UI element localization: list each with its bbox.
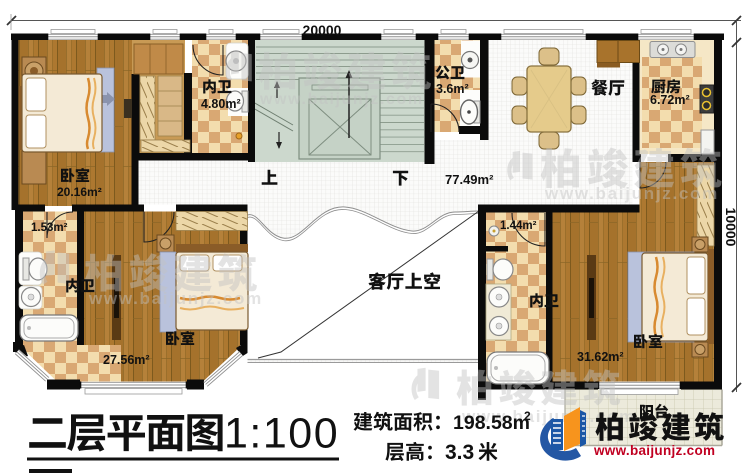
svg-text:1:100: 1:100 (224, 410, 339, 458)
svg-text:www.baijunjz.com: www.baijunjz.com (544, 184, 719, 203)
svg-text:4.80m²: 4.80m² (201, 97, 241, 111)
svg-text:6.72m²: 6.72m² (650, 93, 690, 107)
svg-text:31.62m²: 31.62m² (577, 350, 624, 364)
svg-text:10000: 10000 (723, 208, 739, 247)
svg-text:20.16m²: 20.16m² (57, 185, 102, 199)
svg-text:www.baijunjz.com: www.baijunjz.com (259, 91, 424, 108)
svg-text:20000: 20000 (303, 22, 342, 38)
svg-text:77.49m²: 77.49m² (445, 172, 494, 187)
svg-text:2: 2 (524, 409, 531, 423)
svg-text:www.baijunjz.com: www.baijunjz.com (88, 289, 263, 308)
svg-text:3.6m²: 3.6m² (436, 82, 469, 96)
svg-text:www.baijunjz.com: www.baijunjz.com (593, 443, 715, 458)
svg-text:27.56m²: 27.56m² (103, 353, 150, 367)
svg-text:1.53m²: 1.53m² (31, 222, 68, 234)
svg-text:198.58m: 198.58m (453, 412, 530, 434)
svg-text:1.44m²: 1.44m² (500, 220, 537, 232)
svg-text:3.3: 3.3 (445, 441, 474, 464)
